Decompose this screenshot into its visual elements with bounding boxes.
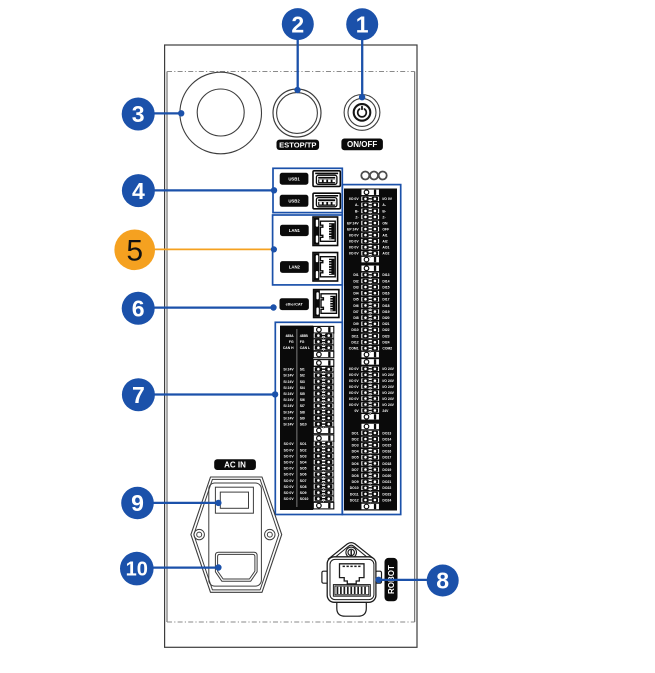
svg-text:DO6: DO6 xyxy=(352,462,359,466)
svg-text:OFF: OFF xyxy=(382,227,389,231)
svg-text:DO21: DO21 xyxy=(382,480,391,484)
svg-text:CAN L: CAN L xyxy=(300,346,310,350)
svg-text:SI 24V: SI 24V xyxy=(283,368,294,372)
svg-text:9: 9 xyxy=(131,490,144,516)
svg-text:SI10: SI10 xyxy=(300,422,307,426)
svg-text:SI9: SI9 xyxy=(300,416,305,420)
svg-text:SI2: SI2 xyxy=(300,374,305,378)
svg-text:COM1: COM1 xyxy=(349,347,359,351)
svg-text:DI18: DI18 xyxy=(382,304,389,308)
svg-text:10: 10 xyxy=(126,559,148,581)
svg-text:SO1: SO1 xyxy=(300,442,307,446)
svg-text:Z-: Z- xyxy=(382,215,385,219)
svg-text:DI4: DI4 xyxy=(353,292,358,296)
svg-text:I/O 24V: I/O 24V xyxy=(382,403,394,407)
svg-text:DI22: DI22 xyxy=(382,328,389,332)
svg-text:etherCAT: etherCAT xyxy=(286,302,304,307)
svg-text:485A: 485A xyxy=(285,334,294,338)
svg-text:SI1: SI1 xyxy=(300,368,305,372)
svg-text:LAN2: LAN2 xyxy=(289,265,301,270)
svg-text:I/O 0V: I/O 0V xyxy=(349,397,359,401)
svg-text:FG: FG xyxy=(300,340,305,344)
svg-text:SO4: SO4 xyxy=(300,460,307,464)
svg-text:DI20: DI20 xyxy=(382,316,389,320)
svg-text:DO17: DO17 xyxy=(382,456,391,460)
svg-text:DI24: DI24 xyxy=(382,340,389,344)
svg-text:B-: B- xyxy=(382,209,386,213)
svg-text:DI3: DI3 xyxy=(353,285,358,289)
svg-text:I/O 0V: I/O 0V xyxy=(349,391,359,395)
svg-text:EP 24V: EP 24V xyxy=(347,227,359,231)
svg-text:SO 0V: SO 0V xyxy=(284,473,295,477)
svg-text:DO19: DO19 xyxy=(382,468,391,472)
svg-text:I/O 0V: I/O 0V xyxy=(349,403,359,407)
svg-text:LAN1: LAN1 xyxy=(289,228,301,233)
svg-text:7: 7 xyxy=(132,382,145,408)
svg-text:DO16: DO16 xyxy=(382,450,391,454)
svg-text:DI13: DI13 xyxy=(382,273,389,277)
svg-text:485B: 485B xyxy=(300,334,309,338)
svg-text:ESTOP/TP: ESTOP/TP xyxy=(279,141,316,150)
svg-text:I/O 0V: I/O 0V xyxy=(349,197,359,201)
svg-text:SO 0V: SO 0V xyxy=(284,479,295,483)
svg-text:SO 0V: SO 0V xyxy=(284,491,295,495)
svg-text:SI 24V: SI 24V xyxy=(283,404,294,408)
svg-text:I/O 24V: I/O 24V xyxy=(382,391,394,395)
svg-text:DO24: DO24 xyxy=(382,498,391,502)
svg-text:DI19: DI19 xyxy=(382,310,389,314)
svg-text:ON: ON xyxy=(382,221,388,225)
svg-text:AC IN: AC IN xyxy=(224,460,246,469)
svg-text:DO1: DO1 xyxy=(352,431,359,435)
svg-text:SI7: SI7 xyxy=(300,404,305,408)
svg-text:DO4: DO4 xyxy=(352,450,359,454)
svg-text:DI15: DI15 xyxy=(382,285,389,289)
svg-text:USB1: USB1 xyxy=(288,176,300,181)
svg-text:DO20: DO20 xyxy=(382,474,391,478)
svg-text:AI2: AI2 xyxy=(382,240,387,244)
svg-text:I/O 0V: I/O 0V xyxy=(349,240,359,244)
svg-text:SO5: SO5 xyxy=(300,467,307,471)
svg-text:DI14: DI14 xyxy=(382,279,389,283)
svg-text:I/O 24V: I/O 24V xyxy=(382,373,394,377)
svg-text:I/O 0V: I/O 0V xyxy=(349,246,359,250)
svg-text:DO15: DO15 xyxy=(382,443,391,447)
svg-text:SI 24V: SI 24V xyxy=(283,386,294,390)
svg-text:DO23: DO23 xyxy=(382,492,391,496)
svg-text:I/O 0V: I/O 0V xyxy=(349,233,359,237)
svg-text:DO5: DO5 xyxy=(352,456,359,460)
svg-text:8: 8 xyxy=(436,568,449,594)
svg-text:DI1: DI1 xyxy=(353,273,358,277)
svg-text:B-: B- xyxy=(355,209,359,213)
svg-text:I/O 24V: I/O 24V xyxy=(382,367,394,371)
svg-text:DO10: DO10 xyxy=(350,486,359,490)
svg-text:24V: 24V xyxy=(382,409,389,413)
svg-text:DO11: DO11 xyxy=(350,492,359,496)
svg-text:DO7: DO7 xyxy=(352,468,359,472)
svg-text:DO8: DO8 xyxy=(352,474,359,478)
svg-text:DI17: DI17 xyxy=(382,298,389,302)
svg-text:ON/OFF: ON/OFF xyxy=(347,140,377,149)
svg-text:DO13: DO13 xyxy=(382,431,391,435)
svg-text:SI 24V: SI 24V xyxy=(283,410,294,414)
svg-text:Z-: Z- xyxy=(355,215,358,219)
svg-text:SI3: SI3 xyxy=(300,380,305,384)
svg-text:I/O 24V: I/O 24V xyxy=(382,379,394,383)
svg-text:SO7: SO7 xyxy=(300,479,307,483)
svg-text:SI 24V: SI 24V xyxy=(283,416,294,420)
svg-text:4: 4 xyxy=(132,178,145,204)
svg-text:DI10: DI10 xyxy=(351,328,358,332)
svg-text:DO18: DO18 xyxy=(382,462,391,466)
svg-text:DO3: DO3 xyxy=(352,443,359,447)
svg-text:SO 0V: SO 0V xyxy=(284,442,295,446)
svg-text:6: 6 xyxy=(132,295,145,321)
svg-text:USB2: USB2 xyxy=(288,198,300,203)
svg-text:SO10: SO10 xyxy=(300,497,309,501)
svg-text:SO 0V: SO 0V xyxy=(284,467,295,471)
svg-text:I/O 0V: I/O 0V xyxy=(349,385,359,389)
svg-text:SO 0V: SO 0V xyxy=(284,454,295,458)
svg-text:DO2: DO2 xyxy=(352,437,359,441)
svg-text:SO9: SO9 xyxy=(300,491,307,495)
svg-text:SO 0V: SO 0V xyxy=(284,497,295,501)
svg-text:DI21: DI21 xyxy=(382,322,389,326)
svg-text:DI23: DI23 xyxy=(382,334,389,338)
svg-text:EP 24V: EP 24V xyxy=(347,221,359,225)
svg-text:3: 3 xyxy=(132,101,145,127)
svg-text:5: 5 xyxy=(126,234,143,267)
svg-text:1: 1 xyxy=(356,11,369,37)
svg-text:SI 24V: SI 24V xyxy=(283,398,294,402)
svg-text:DI5: DI5 xyxy=(353,298,358,302)
svg-text:DI16: DI16 xyxy=(382,292,389,296)
svg-text:I/O 0V: I/O 0V xyxy=(349,252,359,256)
svg-text:DO12: DO12 xyxy=(350,498,359,502)
svg-text:DO9: DO9 xyxy=(352,480,359,484)
svg-text:SO 0V: SO 0V xyxy=(284,460,295,464)
svg-text:I/O 24V: I/O 24V xyxy=(382,397,394,401)
svg-text:SO3: SO3 xyxy=(300,454,307,458)
svg-text:SO 0V: SO 0V xyxy=(284,485,295,489)
svg-text:SI 24V: SI 24V xyxy=(283,374,294,378)
svg-text:0V: 0V xyxy=(354,409,359,413)
svg-text:SI4: SI4 xyxy=(300,386,305,390)
svg-text:FG: FG xyxy=(289,340,294,344)
svg-text:SO8: SO8 xyxy=(300,485,307,489)
svg-text:SO2: SO2 xyxy=(300,448,307,452)
svg-text:SI5: SI5 xyxy=(300,392,305,396)
svg-text:SI 24V: SI 24V xyxy=(283,380,294,384)
svg-text:I/O 0V: I/O 0V xyxy=(349,367,359,371)
svg-text:DI2: DI2 xyxy=(353,279,358,283)
svg-text:I/O 0V: I/O 0V xyxy=(349,373,359,377)
svg-text:SI 24V: SI 24V xyxy=(283,422,294,426)
svg-text:DI11: DI11 xyxy=(352,334,359,338)
svg-text:DI9: DI9 xyxy=(353,322,358,326)
svg-text:AO2: AO2 xyxy=(382,252,389,256)
svg-text:I/O 0V: I/O 0V xyxy=(349,379,359,383)
svg-text:SO 0V: SO 0V xyxy=(284,448,295,452)
svg-text:AO1: AO1 xyxy=(382,246,389,250)
svg-text:DI6: DI6 xyxy=(353,304,358,308)
svg-text:DO14: DO14 xyxy=(382,437,391,441)
svg-text:2: 2 xyxy=(291,11,304,37)
svg-text:A-: A- xyxy=(355,203,359,207)
svg-text:SI6: SI6 xyxy=(300,398,305,402)
svg-text:SI 24V: SI 24V xyxy=(283,392,294,396)
svg-text:AI1: AI1 xyxy=(382,233,387,237)
svg-text:I/O 0V: I/O 0V xyxy=(382,197,392,201)
svg-text:DI7: DI7 xyxy=(353,310,358,314)
svg-text:SO6: SO6 xyxy=(300,473,307,477)
svg-text:DO22: DO22 xyxy=(382,486,391,490)
svg-text:COM2: COM2 xyxy=(382,347,392,351)
svg-text:DI8: DI8 xyxy=(353,316,358,320)
svg-text:SI8: SI8 xyxy=(300,410,305,414)
svg-text:DI12: DI12 xyxy=(351,340,358,344)
svg-text:A-: A- xyxy=(382,203,386,207)
svg-text:I/O 24V: I/O 24V xyxy=(382,385,394,389)
svg-text:CAN H: CAN H xyxy=(283,346,294,350)
